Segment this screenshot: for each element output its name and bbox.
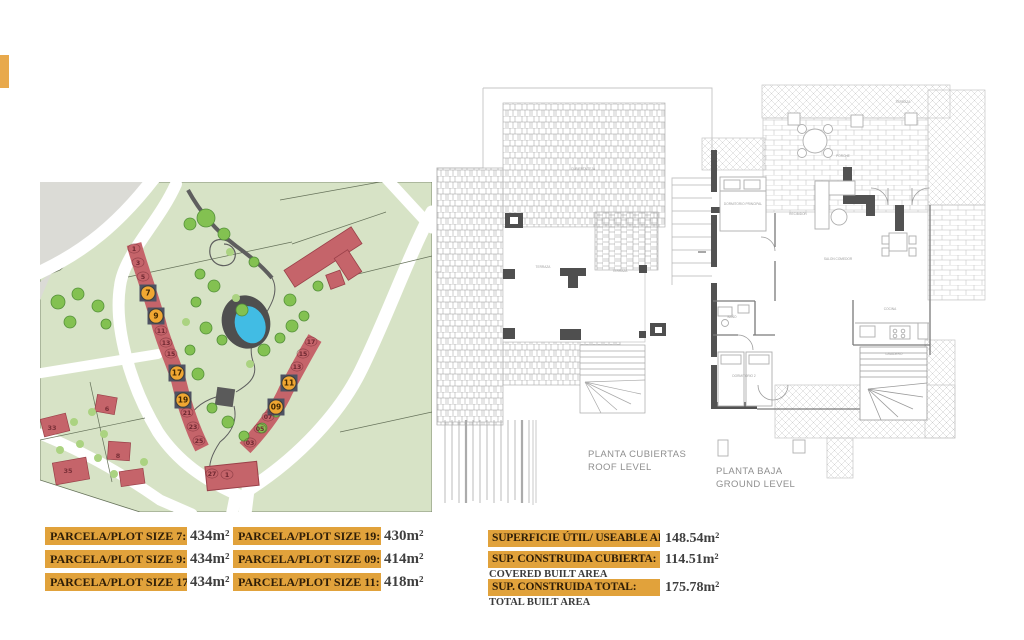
room-label: CUBIERTA TEJA [571,167,596,171]
room-label: SALON COMEDOR [824,257,853,261]
side-plot-number: 35 [63,467,73,475]
area-label: SUP. CONSTRUIDA TOTAL: [488,579,660,596]
highlighted-plot-number: 19 [178,396,188,405]
plot-size-label: PARCELA/PLOT SIZE 09: [233,550,381,568]
plot-number: 13 [293,364,302,371]
area-label: SUPERFICIE ÚTIL/ USEABLE AREA: [488,530,660,547]
highlighted-plot-number: 9 [153,312,158,321]
area-label: SUP. CONSTRUIDA CUBIERTA: [488,551,660,568]
ground-plan-title-line1: PLANTA BAJA [716,465,795,478]
roof-plan: CUBIERTA TEJATERRAZATERRAZA [435,20,715,505]
plot-size-value: 434m² [190,527,230,545]
ground-plan-title-line2: GROUND LEVEL [716,478,795,491]
side-plot-number: 33 [47,424,56,432]
plot-size-value: 414m² [384,550,424,568]
plot-size-label: PARCELA/PLOT SIZE 7: [45,527,187,545]
highlighted-plot-number: 7 [145,289,150,298]
room-label: BAÑO [727,314,737,319]
room-label: RECIBIDOR [789,212,807,216]
plot-number: 23 [189,424,198,431]
plot-number: 07 [264,414,273,421]
plot-size-value: 418m² [384,573,424,591]
highlighted-plot-number: 17 [172,369,182,378]
area-value: 148.54m² [665,530,719,547]
plot-size-value: 434m² [190,550,230,568]
plot-number: 03 [246,440,255,447]
plot-number: 05 [256,426,265,433]
plot-number: 1 [225,472,229,479]
plot-number: 1 [132,246,136,253]
brochure-page: www [0,0,1024,640]
room-label: DORMITORIO PRINCIPAL [724,202,762,206]
room-label: TERRAZA [896,100,912,104]
plot-number: 25 [195,438,204,445]
plot-size-label: PARCELA/PLOT SIZE 11: [233,573,381,591]
area-value: 175.78m² [665,579,719,596]
roof-plan-title-line1: PLANTA CUBIERTAS [588,448,686,461]
roof-stairs [580,345,645,413]
plot-number: 11 [157,328,166,335]
plot-number: 17 [307,339,316,346]
room-label: LAVADERO [886,352,903,356]
plot-number: 13 [162,340,171,347]
ground-plan-title: PLANTA BAJA GROUND LEVEL [716,465,795,492]
ground-plan: DORMITORIO PRINCIPALRECIBIDORSALON COMED… [698,55,990,505]
roof-plan-title-line2: ROOF LEVEL [588,461,686,474]
plot-size-label: PARCELA/PLOT SIZE 9: [45,550,187,568]
plot-number: 21 [183,410,192,417]
room-label: TERRAZA [613,269,629,273]
roof-plan-title: PLANTA CUBIERTAS ROOF LEVEL [588,448,686,475]
side-plot-number: 6 [105,405,110,413]
plot-number: 5 [141,274,145,281]
page-edge-marker [0,55,9,88]
room-label: PORCHE [836,154,850,158]
highlighted-plot-number: 09 [271,403,281,412]
site-map: 1357911131517192123251715131109070503271… [40,182,432,512]
plot-size-value: 434m² [190,573,230,591]
plot-size-value: 430m² [384,527,424,545]
room-label: COCINA [884,307,897,311]
plot-number: 27 [208,471,217,478]
area-value: 114.51m² [665,551,719,568]
roof-tiles [595,212,658,270]
plaza-square [215,387,235,407]
plot-number: 15 [167,351,176,358]
plot-size-label: PARCELA/PLOT SIZE 19: [233,527,381,545]
side-plot-number: 8 [116,452,121,460]
room-label: TERRAZA [536,265,552,269]
plot-number: 15 [299,351,308,358]
area-sublabel: TOTAL BUILT AREA [489,597,590,608]
roof-pergola [445,420,529,503]
highlighted-plot-number: 11 [284,379,294,388]
ground-stairs [860,347,927,420]
plot-number: 3 [136,260,140,267]
porch-table [798,125,833,158]
plot-size-label: PARCELA/PLOT SIZE 17: [45,573,187,591]
room-label: DORMITORIO 2 [732,374,756,378]
